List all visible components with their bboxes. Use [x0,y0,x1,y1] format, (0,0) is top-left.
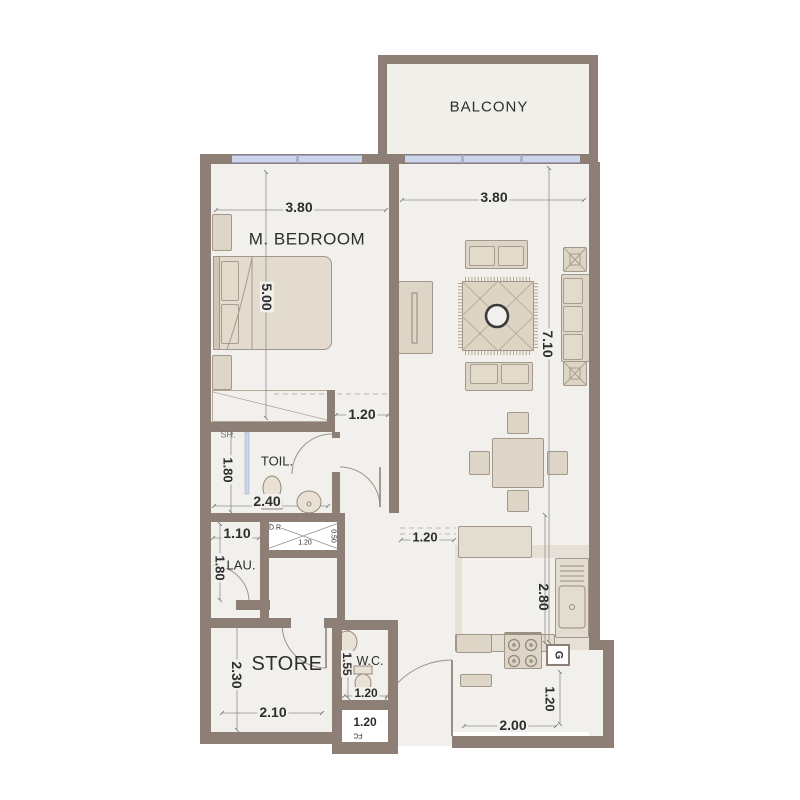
rug [462,281,534,351]
laundry-label: LAU. [227,559,256,572]
dim-kitchen-passage: 1.20 [410,531,439,544]
dim-shaft-width: 1.20 [298,540,312,547]
nightstand [212,214,232,251]
pillow [221,304,239,344]
balcony-wall-left [378,55,387,163]
wall-store-right [332,618,342,744]
sofa-cushion [498,246,524,266]
sofa-cushion [563,334,583,360]
dim-entry-depth: 1.20 [544,684,557,713]
wall-hall-west [337,513,345,620]
dim-hallway-width: 1.20 [346,407,377,421]
dining-chair [469,451,490,475]
wall-toilet-stub-top [332,432,340,438]
bed-headboard [213,256,220,350]
dim-store-width: 2.10 [257,705,288,719]
dim-bedroom-width: 3.80 [283,200,314,214]
dim-toilet-depth: 1.80 [222,455,235,484]
side-table [563,247,587,272]
dim-wc-depth: 1.55 [341,650,353,677]
wall-left [200,154,211,744]
dim-living-width: 3.80 [478,190,509,204]
stove [504,632,542,669]
duct-riser-label: D.R [269,525,281,532]
fan-coil-label: FC [353,732,362,739]
wall-bottom-left [200,732,342,744]
tv-console [398,281,433,354]
balcony-label: BALCONY [450,100,529,115]
wardrobe [212,390,328,422]
window-mullion [296,155,299,163]
living-balcony-window [405,155,580,163]
wall-bedroom-living [389,164,399,513]
wall-wc-right [388,620,398,746]
wall-right-lower [603,640,614,748]
dim-bedroom-depth: 5.00 [260,281,274,312]
dining-chair [547,451,568,475]
sofa-cushion [501,364,529,384]
wc-label: W.C. [356,655,383,668]
entry-shelf [460,674,492,687]
dining-table [492,438,544,488]
sofa-cushion [563,278,583,304]
window-mullion [520,155,523,163]
side-table [563,361,587,386]
dim-kitchen-depth: 2.80 [537,581,551,612]
dim-store-depth: 2.30 [230,659,244,690]
dim-laundry-width: 1.10 [221,526,252,540]
dining-chair [507,490,529,512]
entry-threshold [392,732,452,746]
sofa-cushion [469,246,495,266]
shower-label: SH. [220,431,235,440]
toilet-label: TOIL. [261,455,293,468]
balcony-wall-right [589,55,598,163]
sofa-cushion [563,306,583,332]
kitchen-counter-peninsula [458,526,532,558]
entry-floor-strip [589,650,603,736]
dim-entry-width: 2.00 [497,718,528,732]
dim-wc-width: 1.20 [352,687,379,699]
wall-laundry-south [236,600,270,610]
dim-laundry-depth: 1.80 [214,553,227,582]
kitchen-counter-right [555,558,589,638]
dim-toilet-width: 2.40 [251,494,282,508]
dim-living-depth: 7.10 [541,328,555,359]
floor-plan: BALCONY M. BEDROOM 3.80 5.00 3.80 7.10 1… [0,0,800,800]
wall-toilet-stub-bottom [332,472,340,513]
wall-right-upper [589,162,600,648]
wall-store-top [211,618,291,628]
balcony-wall-top [378,55,598,64]
pillow [221,261,239,301]
wall-wardrobe-end [327,390,335,422]
gas-label: G [553,651,564,660]
window-mullion [461,155,464,163]
wall-toilet-bottom [211,513,345,522]
dining-chair [507,412,529,434]
dim-shaft-depth: 0.50 [330,529,337,543]
wall-bottom-entry [452,736,614,748]
sofa-cushion [470,364,498,384]
nightstand [212,355,232,390]
store-label: STORE [251,654,322,674]
bedroom-label: M. BEDROOM [249,231,365,248]
dim-fc-width: 1.20 [351,716,378,728]
fridge [456,634,492,653]
wall-shaft-bottom [260,550,345,558]
